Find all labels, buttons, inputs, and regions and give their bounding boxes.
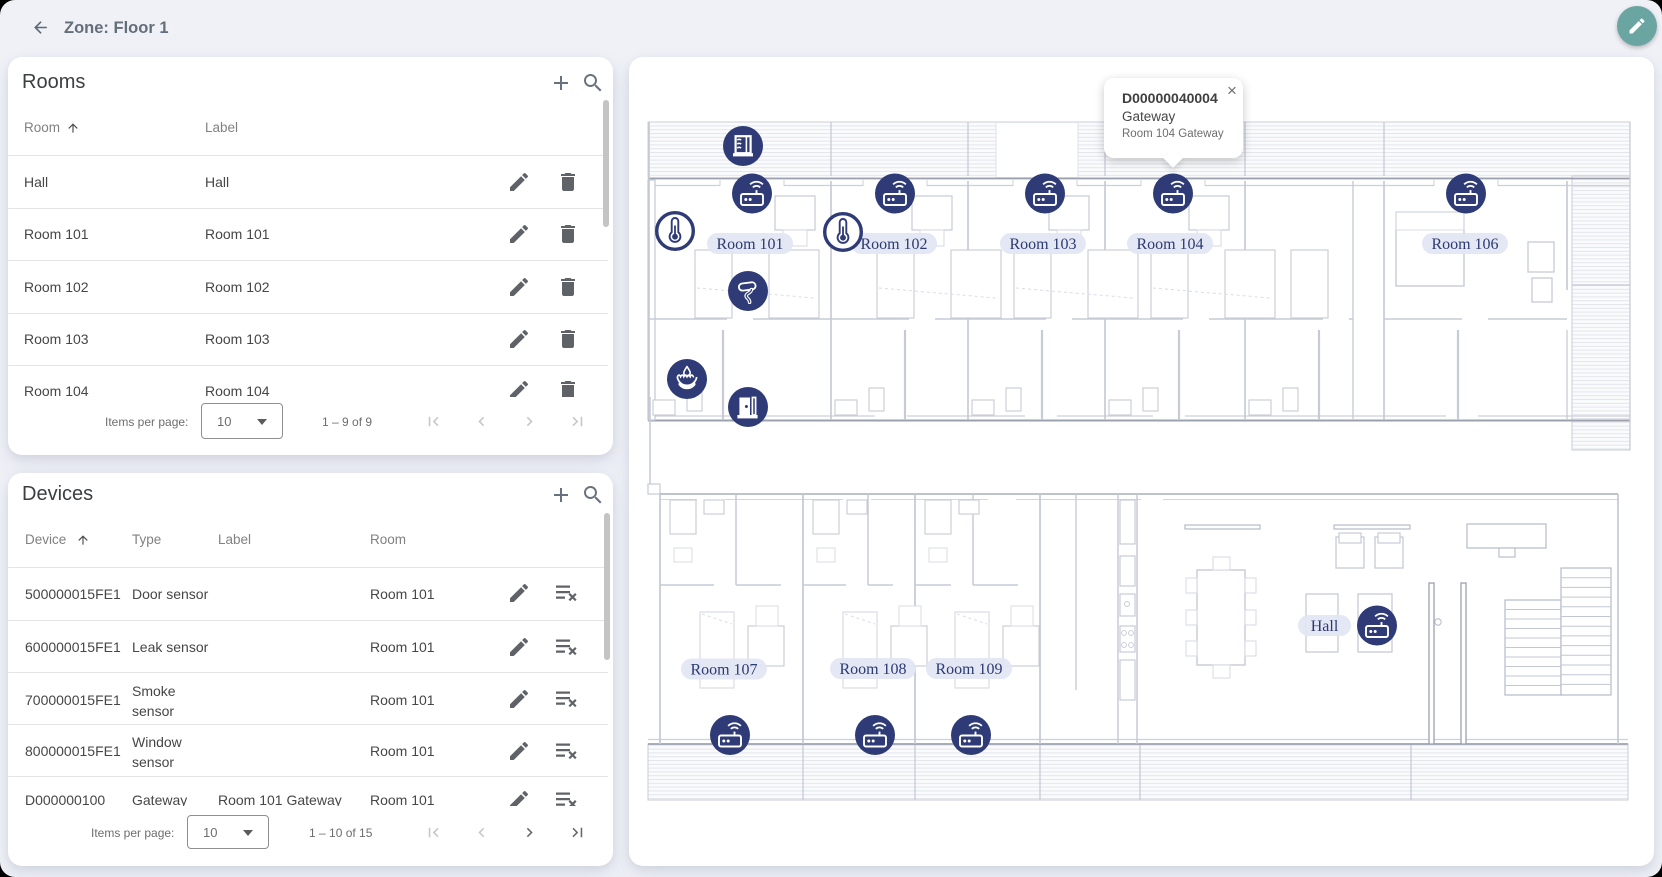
svg-text:Room 104: Room 104 — [1136, 236, 1203, 253]
svg-text:Room 107: Room 107 — [690, 662, 757, 679]
svg-text:Hall: Hall — [1311, 618, 1339, 635]
svg-text:Room 102: Room 102 — [860, 236, 927, 253]
svg-text:Room 106: Room 106 — [1431, 236, 1498, 253]
svg-text:Room 108: Room 108 — [839, 661, 906, 678]
svg-text:Room 109: Room 109 — [935, 661, 1002, 678]
svg-text:Room 103: Room 103 — [1009, 236, 1076, 253]
svg-text:Room 101: Room 101 — [716, 236, 783, 253]
